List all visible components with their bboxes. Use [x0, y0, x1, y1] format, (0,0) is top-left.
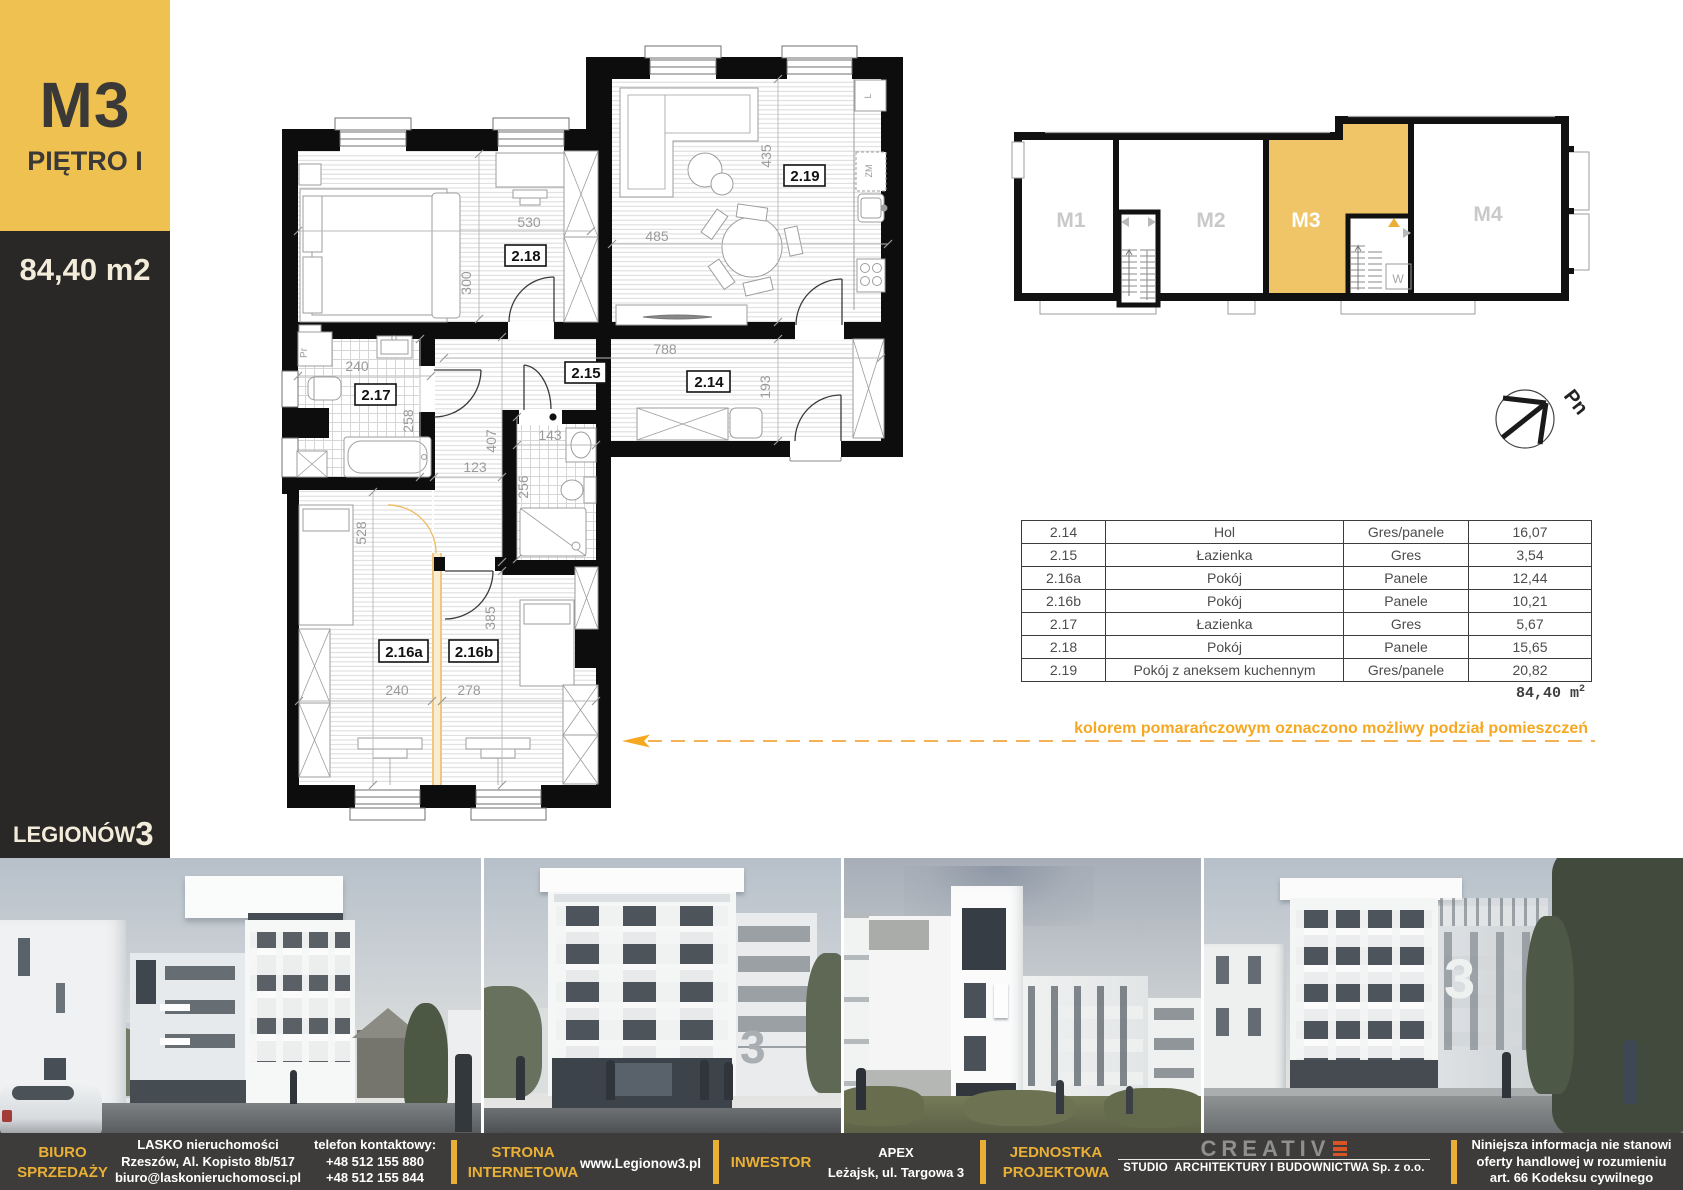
svg-text:Pn: Pn [1559, 386, 1592, 420]
svg-text:788: 788 [653, 341, 677, 357]
svg-text:258: 258 [400, 409, 416, 433]
svg-text:2.18: 2.18 [511, 248, 540, 265]
svg-text:2.16b: 2.16b [455, 644, 493, 661]
svg-text:485: 485 [645, 228, 669, 244]
svg-text:Pr: Pr [299, 347, 310, 358]
svg-text:M4: M4 [1473, 203, 1502, 226]
svg-text:123: 123 [463, 459, 487, 475]
svg-text:278: 278 [457, 682, 481, 698]
svg-text:300: 300 [458, 271, 474, 295]
svg-text:193: 193 [757, 375, 773, 399]
svg-text:2.16a: 2.16a [385, 644, 423, 661]
svg-text:M3: M3 [1291, 209, 1320, 232]
svg-text:M2: M2 [1196, 209, 1225, 232]
svg-text:2.15: 2.15 [571, 365, 600, 382]
svg-text:W: W [1392, 272, 1404, 286]
svg-text:435: 435 [758, 144, 774, 168]
svg-text:M1: M1 [1056, 209, 1085, 232]
svg-text:2.14: 2.14 [694, 374, 724, 391]
svg-text:L: L [863, 93, 873, 98]
svg-text:240: 240 [345, 358, 369, 374]
svg-text:407: 407 [483, 429, 499, 453]
svg-text:240: 240 [385, 682, 409, 698]
svg-text:385: 385 [482, 606, 498, 630]
svg-text:530: 530 [517, 214, 541, 230]
svg-text:ZM: ZM [864, 165, 874, 178]
svg-text:143: 143 [538, 427, 562, 443]
svg-text:2.19: 2.19 [790, 168, 819, 185]
svg-text:528: 528 [353, 521, 369, 545]
svg-text:256: 256 [515, 475, 531, 499]
svg-text:2.17: 2.17 [361, 387, 390, 404]
